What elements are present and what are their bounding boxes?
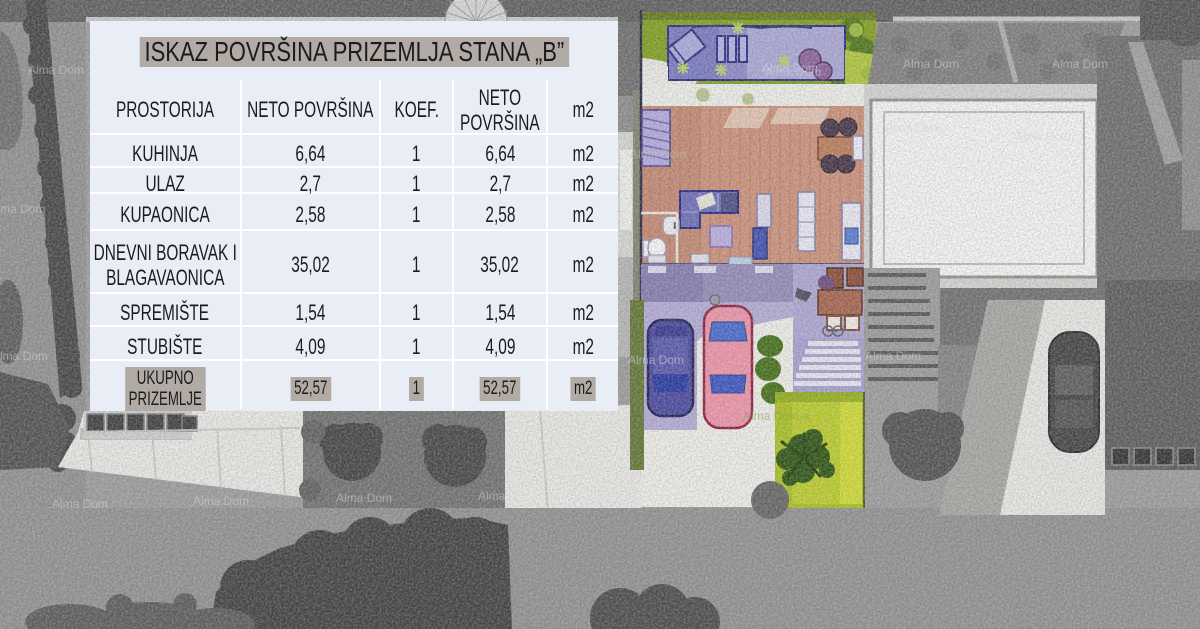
svg-text:Alma Dom: Alma Dom: [1052, 57, 1108, 71]
svg-text:Alma Dom: Alma Dom: [28, 63, 84, 77]
svg-text:lma Dom: lma Dom: [0, 349, 48, 363]
svg-text:Alma Dom-a: Alma Dom-a: [743, 409, 810, 423]
svg-text:Alma Dom: Alma Dom: [628, 353, 684, 367]
svg-text:Alma Dom: Alma Dom: [762, 61, 818, 75]
svg-text:ma Dom: ma Dom: [0, 202, 45, 216]
svg-text:Alma Dom: Alma Dom: [193, 494, 249, 508]
svg-text:Alma Dom: Alma Dom: [903, 57, 959, 71]
svg-text:Alma Dom: Alma Dom: [630, 147, 686, 161]
svg-text:Alma Dom: Alma Dom: [1015, 129, 1071, 143]
svg-text:Alma Dom: Alma Dom: [52, 497, 108, 511]
svg-text:Alma Dom: Alma Dom: [865, 349, 921, 363]
svg-text:Alma: Alma: [478, 489, 506, 503]
svg-text:Alma Dom: Alma Dom: [885, 121, 941, 135]
svg-text:Alma Dom: Alma Dom: [336, 491, 392, 505]
